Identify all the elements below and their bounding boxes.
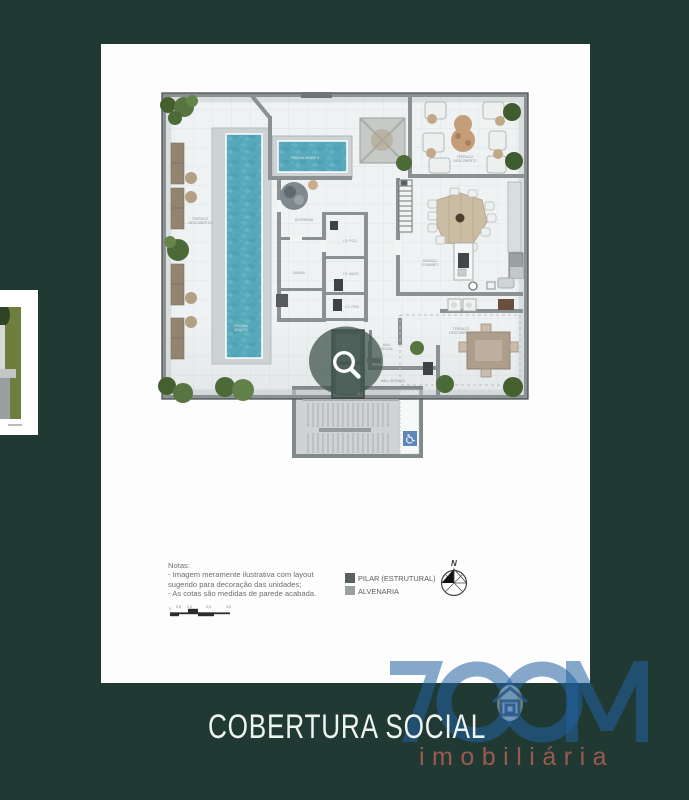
svg-text:DESCOBERTO: DESCOBERTO — [453, 159, 477, 163]
svg-text:2,0: 2,0 — [206, 605, 211, 609]
svg-text:PISCINA INFANTIL: PISCINA INFANTIL — [290, 156, 319, 160]
svg-text:DESCOBERTO: DESCOBERTO — [449, 331, 473, 335]
svg-text:GOURMET: GOURMET — [421, 263, 438, 267]
svg-text:3,0: 3,0 — [226, 605, 231, 609]
svg-text:N: N — [451, 559, 457, 568]
svg-text:HALL SERVIÇO: HALL SERVIÇO — [381, 379, 406, 383]
svg-text:DESCOBERTO: DESCOBERTO — [188, 221, 212, 225]
svg-text:I.S. FEM: I.S. FEM — [345, 305, 358, 309]
svg-text:1,0: 1,0 — [187, 605, 192, 609]
svg-text:I.S. PCD: I.S. PCD — [343, 239, 357, 243]
svg-text:SOCIAL: SOCIAL — [381, 347, 394, 351]
svg-text:DESPENSA: DESPENSA — [295, 218, 314, 222]
svg-text:I.S. MASC: I.S. MASC — [343, 272, 359, 276]
svg-text:0: 0 — [169, 607, 171, 611]
svg-text:ADULTO: ADULTO — [234, 328, 248, 332]
svg-text:0,5: 0,5 — [176, 605, 181, 609]
svg-text:SAUNA: SAUNA — [293, 271, 305, 275]
